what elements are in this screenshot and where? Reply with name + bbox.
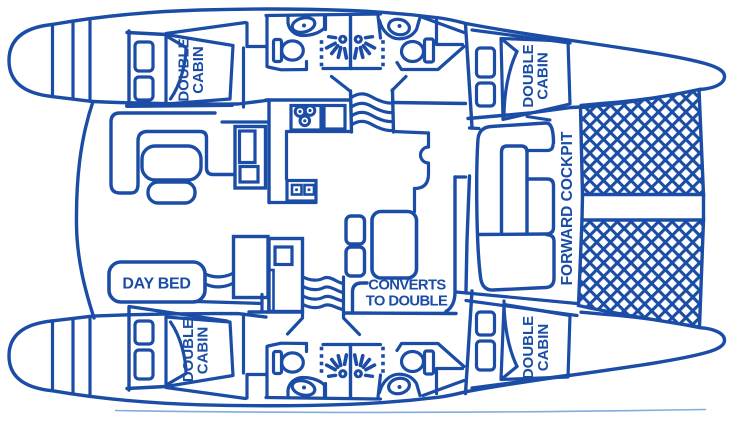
svg-text:CABIN: CABIN [195,327,212,375]
svg-text:CABIN: CABIN [190,46,207,94]
svg-text:CABIN: CABIN [535,52,552,100]
svg-text:DAY BED: DAY BED [122,276,190,293]
svg-text:CONVERTS: CONVERTS [368,278,446,294]
svg-text:CABIN: CABIN [535,324,552,372]
svg-text:FORWARD COCKPIT: FORWARD COCKPIT [559,131,576,285]
svg-text:TO DOUBLE: TO DOUBLE [366,294,448,310]
